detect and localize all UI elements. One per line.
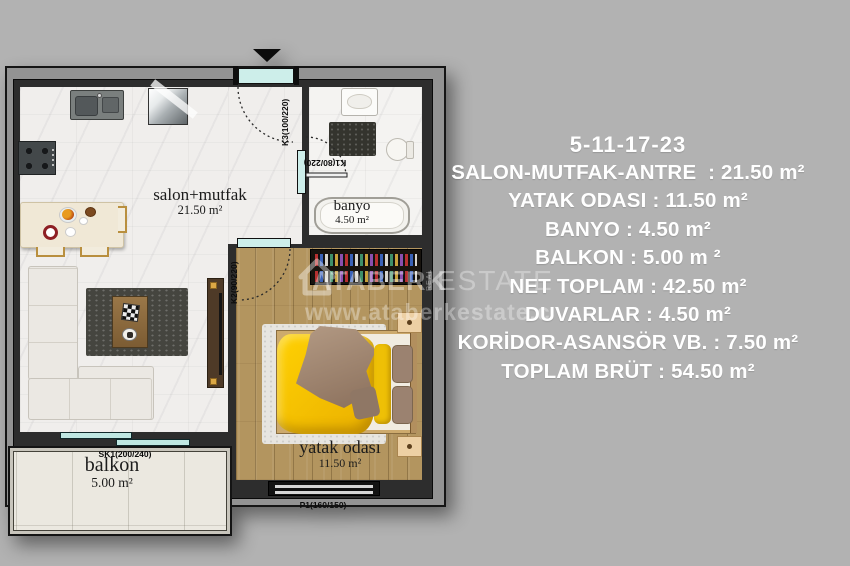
label-bath-door: K1(80/220) xyxy=(301,158,349,168)
sofa xyxy=(28,378,152,420)
bedroom-window xyxy=(268,481,380,496)
balcony-slider-panel xyxy=(116,439,190,446)
balcony-slider-panel xyxy=(60,432,132,439)
kitchen-sink xyxy=(70,90,124,120)
spec-line-yatak: YATAK ODASI : 11.50 m² xyxy=(408,187,848,215)
chess-board xyxy=(121,303,140,322)
stove xyxy=(18,141,56,175)
spec-line-net-toplam: NET TOPLAM : 42.50 m² xyxy=(408,273,848,301)
spec-line-koridor: KORİDOR-ASANSÖR VB. : 7.50 m² xyxy=(408,329,848,357)
door-post xyxy=(294,66,299,85)
label-banyo: banyo 4.50 m² xyxy=(312,199,392,226)
coffee-table xyxy=(112,296,148,348)
spec-line-banyo: BANYO : 4.50 m² xyxy=(408,216,848,244)
bathroom-door-panel xyxy=(297,150,306,194)
label-bedroom-window: P1(160/150) xyxy=(283,500,363,510)
spec-line-balkon: BALKON : 5.00 m ² xyxy=(408,244,848,272)
sofa xyxy=(28,266,78,380)
bath-mat xyxy=(329,122,376,156)
label-balkon: balkon 5.00 m² xyxy=(52,455,172,490)
pillow xyxy=(392,386,413,424)
tv-unit xyxy=(207,278,224,388)
door-post xyxy=(233,66,238,85)
floorplan-listing-image: salon+mutfak 21.50 m² banyo 4.50 m² yata… xyxy=(0,0,850,566)
spec-line-duvarlar: DUVARLAR : 4.50 m² xyxy=(408,301,848,329)
corridor-floor xyxy=(228,87,302,244)
label-bedroom-door: K2(90/220) xyxy=(229,252,239,304)
label-yatak-odasi: yatak odası 11.50 m² xyxy=(280,438,400,469)
tray xyxy=(122,328,137,341)
entrance-arrow-icon xyxy=(253,49,281,62)
unit-numbers-title: 5-11-17-23 xyxy=(408,131,848,159)
entry-door-panel xyxy=(238,68,294,84)
dining-chair xyxy=(80,247,109,257)
fridge xyxy=(148,88,188,125)
bathroom-sink xyxy=(341,88,378,116)
spec-line-toplam-brut: TOPLAM BRÜT : 54.50 m² xyxy=(408,358,848,386)
bedroom-door-panel xyxy=(237,238,291,248)
dining-chair xyxy=(118,206,127,233)
wardrobe xyxy=(310,249,422,285)
label-salon-mutfak: salon+mutfak 21.50 m² xyxy=(140,186,260,217)
dining-table xyxy=(20,202,124,248)
nightstand xyxy=(397,436,422,457)
spec-line-salon: SALON-MUTFAK-ANTRE : 21.50 m² xyxy=(408,159,848,187)
dining-chair xyxy=(36,247,65,257)
label-entry-door: K3(100/220) xyxy=(280,88,290,146)
unit-specs: 5-11-17-23 SALON-MUTFAK-ANTRE : 21.50 m²… xyxy=(408,131,848,386)
label-balcony-slider: SK1(200/240) xyxy=(85,449,165,459)
